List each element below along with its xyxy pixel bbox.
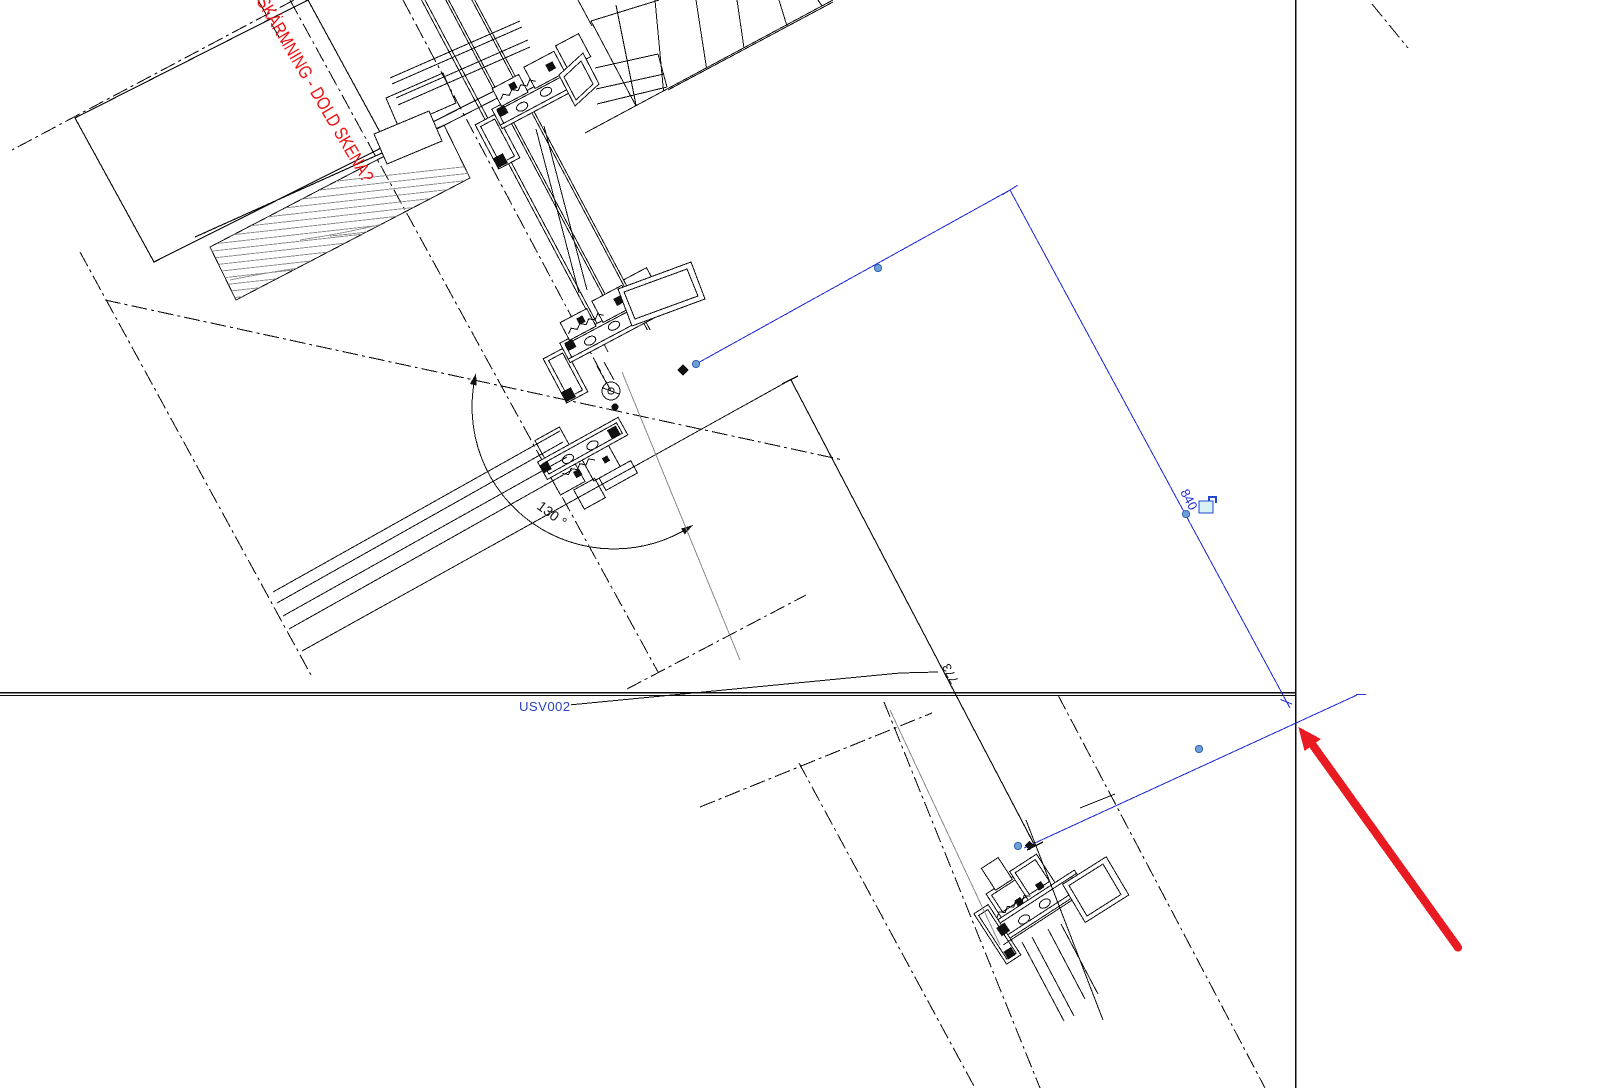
svg-text:USV002: USV002 xyxy=(519,699,571,714)
